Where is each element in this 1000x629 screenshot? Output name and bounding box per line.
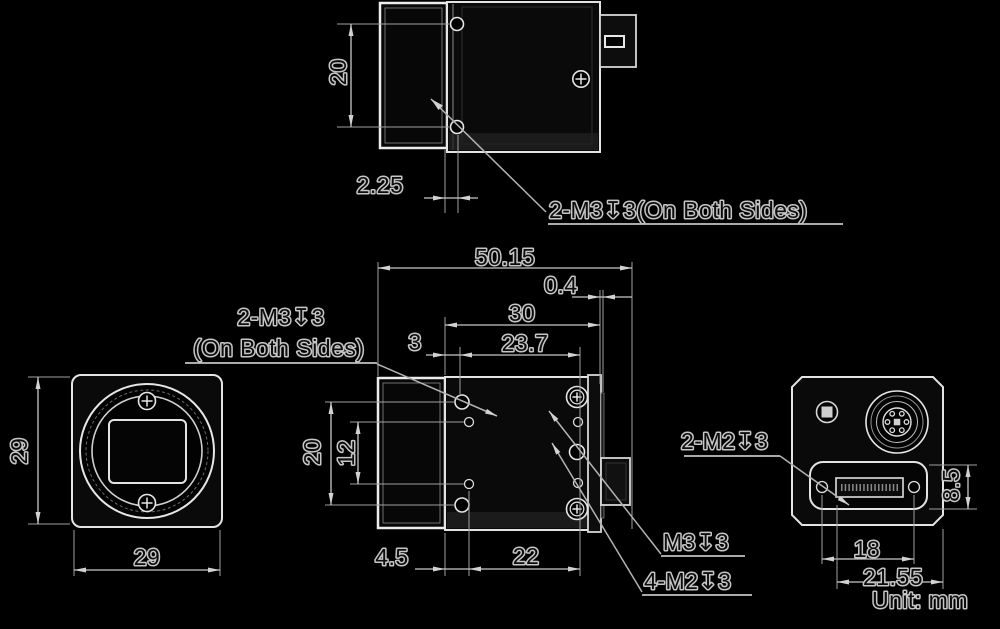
front-view	[72, 375, 222, 527]
side-dim-50-15: 50.15	[475, 244, 535, 270]
body-bottom-shading	[447, 512, 588, 528]
side-label-m3-line2: (On Both Sides)	[193, 335, 364, 361]
m3-hole-front-bottom	[455, 498, 469, 512]
side-label-m3-line1: 2-M3↧3	[237, 304, 324, 330]
side-dim-22: 22	[513, 543, 540, 569]
rear-connector-inner	[606, 463, 626, 500]
side-dim-12: 12	[333, 440, 359, 467]
side-dim-3: 3	[408, 329, 421, 355]
lens-mount-plate-top	[380, 3, 447, 148]
side-label-m3-single: M3↧3	[663, 529, 729, 555]
usb-port-slot	[605, 36, 624, 47]
camera-dimensional-drawing: 20 2.25 2-M3↧3(On Both Sides) 50.15 0.4 …	[0, 0, 1000, 629]
m2-hole-front-bottom	[465, 480, 474, 489]
unit-label: Unit: mm	[872, 587, 968, 613]
connector-key	[894, 419, 901, 426]
back-dim-8-5: 8.5	[938, 468, 964, 501]
phillips-screw	[139, 495, 156, 512]
front-dim-29-height: 29	[6, 438, 32, 465]
top-dim-2-25: 2.25	[357, 172, 404, 198]
side-dim-20: 20	[299, 439, 325, 466]
drawing-canvas: 20 2.25 2-M3↧3(On Both Sides) 50.15 0.4 …	[0, 0, 1000, 629]
side-dim-4-5: 4.5	[375, 544, 408, 570]
back-view	[792, 377, 943, 525]
led-window	[822, 407, 833, 418]
side-dim-23-7: 23.7	[502, 330, 549, 356]
m2-hole-front-top	[465, 418, 474, 427]
side-dim-30: 30	[509, 300, 536, 326]
side-mounting-hole	[451, 121, 464, 134]
phillips-screw	[567, 499, 588, 520]
phillips-screw	[567, 387, 588, 408]
circular-power-connector	[866, 391, 928, 453]
rear-mounting-plate	[588, 375, 601, 532]
m2-screw-hole-right	[909, 482, 920, 493]
top-label-m3-both-sides: 2-M3↧3(On Both Sides)	[549, 197, 808, 223]
side-label-4-m2: 4-M2↧3	[644, 568, 731, 594]
sensor-aperture	[109, 420, 186, 483]
side-mounting-hole	[451, 18, 464, 31]
phillips-screw	[573, 71, 589, 87]
side-dim-0-4: 0.4	[544, 272, 577, 298]
m3-hole-front-top	[455, 395, 469, 409]
back-dim-18: 18	[854, 536, 881, 562]
body-bottom-shading	[449, 133, 598, 150]
top-dim-20: 20	[325, 59, 351, 86]
phillips-screw	[139, 393, 156, 410]
m2-hole-rear-top	[574, 418, 583, 427]
back-label-2-m2: 2-M2↧3	[681, 428, 768, 454]
front-dim-29-width: 29	[134, 544, 161, 570]
